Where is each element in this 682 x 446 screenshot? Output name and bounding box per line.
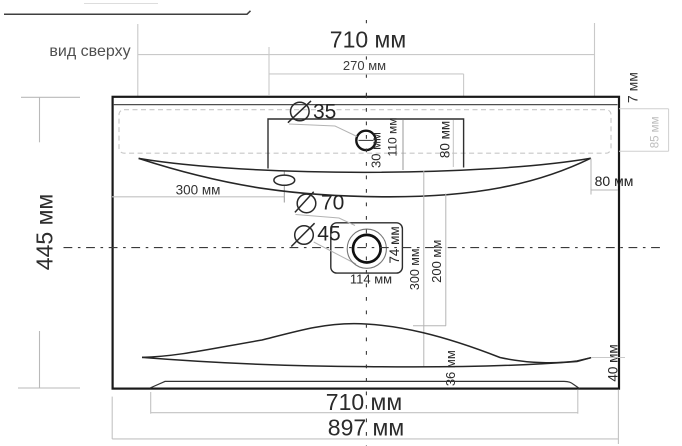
- svg-text:710 мм: 710 мм: [326, 389, 402, 415]
- svg-text:70: 70: [321, 191, 344, 214]
- svg-text:110 мм: 110 мм: [385, 118, 399, 157]
- svg-text:300 мм: 300 мм: [408, 249, 422, 291]
- svg-text:85 мм: 85 мм: [649, 116, 661, 148]
- svg-text:445 мм: 445 мм: [32, 194, 58, 270]
- svg-text:45: 45: [317, 222, 340, 245]
- svg-text:80 мм: 80 мм: [595, 173, 634, 189]
- svg-text:40 мм: 40 мм: [606, 344, 621, 381]
- svg-text:114 мм: 114 мм: [350, 272, 392, 287]
- svg-text:300 мм: 300 мм: [176, 183, 221, 198]
- svg-text:35: 35: [313, 100, 336, 123]
- svg-text:вид сверху: вид сверху: [49, 43, 130, 60]
- svg-text:30 мм: 30 мм: [368, 132, 383, 168]
- svg-text:7 мм: 7 мм: [624, 72, 640, 103]
- svg-text:710 мм: 710 мм: [330, 27, 406, 53]
- svg-text:80 мм: 80 мм: [438, 121, 453, 158]
- svg-text:36 мм: 36 мм: [443, 350, 458, 386]
- svg-text:74 мм: 74 мм: [387, 226, 402, 263]
- svg-text:270 мм: 270 мм: [343, 58, 386, 73]
- svg-text:897 мм: 897 мм: [328, 414, 404, 440]
- svg-text:200 мм: 200 мм: [429, 240, 444, 283]
